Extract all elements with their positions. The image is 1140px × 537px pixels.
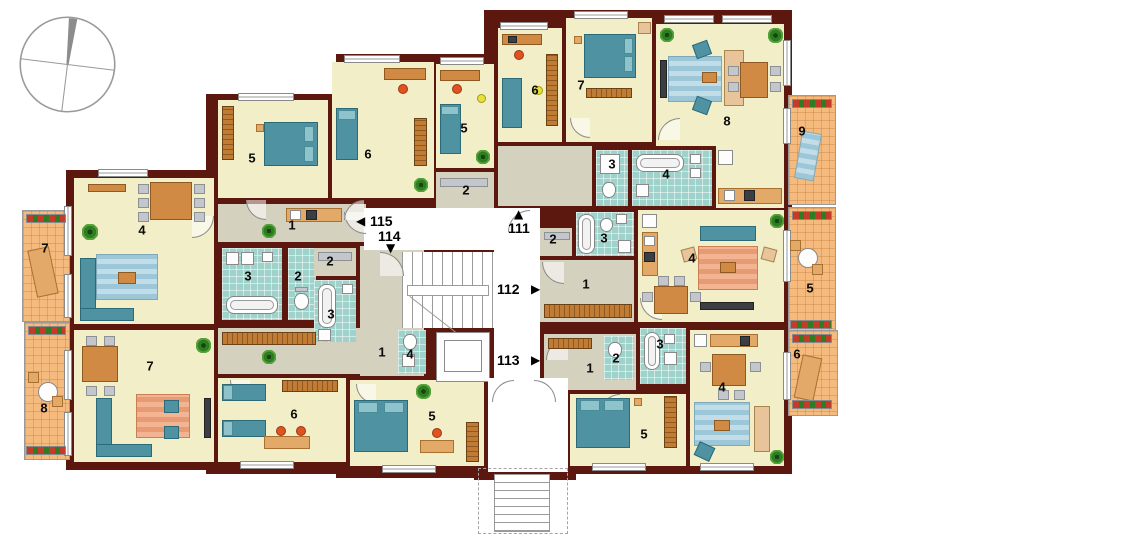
window — [783, 352, 791, 400]
washing-machine — [618, 240, 631, 253]
wardrobe — [222, 332, 316, 345]
plant — [262, 350, 276, 364]
sink — [644, 236, 655, 246]
armchair — [164, 400, 179, 413]
room-label: 7 — [146, 360, 153, 373]
window — [64, 274, 72, 318]
room-label: 7 — [577, 79, 584, 92]
armchair — [164, 426, 179, 439]
armchair — [638, 22, 651, 34]
apartment-number-112: 112 — [497, 282, 520, 296]
bathtub-basin — [640, 158, 680, 168]
apartment-number-115: 115 — [370, 214, 393, 228]
flower-box — [26, 446, 66, 455]
window — [500, 22, 548, 30]
toilet — [294, 293, 309, 310]
room-label: 1 — [288, 219, 295, 232]
corner-sofa — [80, 308, 134, 321]
chair — [728, 66, 739, 76]
chair — [690, 292, 701, 302]
stove — [744, 190, 755, 201]
desk-chair — [276, 426, 286, 436]
chair — [734, 390, 745, 400]
stove — [306, 210, 317, 220]
room-label: 3 — [244, 270, 251, 283]
wardrobe — [548, 338, 592, 349]
washing-machine — [226, 252, 239, 265]
room-label: 1 — [582, 278, 589, 291]
room-label: 5 — [640, 428, 647, 441]
pillow — [580, 400, 600, 411]
room-label: 5 — [806, 282, 813, 295]
window — [592, 463, 646, 471]
flower-box — [792, 334, 832, 343]
room-label: 2 — [326, 255, 333, 268]
room-label: 1 — [378, 346, 385, 359]
floor-plan-canvas: 7 8 9 5 6 4 5 6 1 3 2 7 1 2 3 4 6 5 5 2 … — [0, 0, 1140, 537]
room-label: 8 — [40, 402, 47, 415]
bathtub-basin — [582, 218, 591, 250]
bathtub-basin — [648, 336, 656, 366]
sofa — [700, 226, 756, 241]
tv-cabinet — [660, 60, 667, 98]
chair — [138, 212, 149, 222]
chair — [658, 276, 669, 286]
desk — [420, 440, 454, 453]
chair — [674, 276, 685, 286]
desk — [384, 68, 426, 80]
compass-rose-icon — [15, 12, 120, 117]
apartment-number-111: 111 — [508, 221, 530, 235]
window — [574, 11, 628, 19]
chair — [138, 198, 149, 208]
stove — [740, 336, 750, 346]
chair — [194, 184, 205, 194]
pillow — [384, 402, 404, 413]
dining-table — [654, 286, 688, 314]
flower-box — [792, 99, 832, 108]
washing-machine — [664, 352, 677, 365]
nightstand — [574, 36, 582, 44]
chair — [194, 198, 205, 208]
arrow-right-icon: ▶ — [531, 354, 540, 366]
bathtub — [578, 214, 595, 254]
window — [382, 465, 436, 473]
flower-box — [792, 211, 832, 220]
washing-machine — [241, 252, 254, 265]
window — [700, 463, 754, 471]
pillow — [223, 385, 233, 400]
pillow — [604, 400, 624, 411]
chair — [770, 82, 781, 92]
room-label: 3 — [600, 232, 607, 245]
dining-table — [740, 62, 768, 98]
room-label: 4 — [662, 168, 669, 181]
desk — [264, 436, 310, 449]
plant — [262, 224, 276, 238]
pillow — [358, 402, 378, 413]
room-111-hall — [498, 146, 592, 206]
chair — [104, 336, 115, 346]
blanket-chest — [586, 88, 632, 98]
fridge — [694, 334, 707, 347]
elevator — [436, 332, 490, 382]
window — [783, 108, 791, 144]
window — [238, 93, 294, 101]
tv-cabinet — [700, 302, 754, 310]
entrance-stairs — [494, 474, 550, 532]
room-label: 3 — [656, 338, 663, 351]
flower-box — [26, 214, 66, 223]
room-label: 2 — [294, 270, 301, 283]
single-bed — [502, 78, 522, 128]
room-label: 2 — [612, 352, 619, 365]
room-label: 5 — [428, 410, 435, 423]
chair — [700, 362, 711, 372]
computer — [508, 36, 517, 43]
window — [783, 40, 791, 86]
wardrobe — [466, 422, 479, 462]
fridge — [718, 150, 733, 165]
desk-chair — [398, 84, 408, 94]
desk-chair — [452, 84, 462, 94]
plant — [770, 214, 784, 228]
pillow — [304, 146, 314, 162]
coffee-table — [720, 262, 736, 273]
sink — [724, 190, 735, 201]
sink — [664, 334, 675, 344]
chair — [194, 212, 205, 222]
room-label: 3 — [608, 158, 615, 171]
ball — [477, 94, 486, 103]
chair — [728, 82, 739, 92]
window — [664, 15, 714, 23]
wardrobe — [546, 54, 558, 126]
nightstand — [634, 398, 642, 406]
window — [64, 350, 72, 400]
corner-sofa — [80, 258, 96, 312]
toilet — [602, 182, 616, 198]
desk-chair — [296, 426, 306, 436]
pillow — [304, 126, 314, 142]
chair — [790, 240, 801, 251]
room-label: 6 — [364, 148, 371, 161]
chair — [52, 396, 63, 407]
chair — [86, 336, 97, 346]
room-label: 6 — [290, 408, 297, 421]
sink — [616, 214, 627, 224]
plant — [660, 28, 674, 42]
kitchen-counter — [710, 334, 758, 347]
flower-box — [792, 400, 832, 409]
sink — [262, 252, 273, 262]
coffee-table — [714, 420, 730, 431]
chair — [28, 372, 39, 383]
dining-table — [150, 182, 192, 220]
plant — [416, 384, 431, 399]
chair — [86, 386, 97, 396]
bathtub-basin — [230, 300, 274, 310]
tv-cabinet — [204, 398, 211, 438]
washing-machine — [318, 329, 331, 341]
room-label: 8 — [723, 115, 730, 128]
room-label: 4 — [138, 224, 145, 237]
sink — [690, 168, 701, 178]
pillow — [624, 38, 633, 54]
plant — [770, 450, 784, 464]
dining-table — [712, 354, 746, 386]
plant — [476, 150, 490, 164]
plant — [768, 28, 783, 43]
sofa — [754, 406, 770, 452]
room-label: 5 — [460, 122, 467, 135]
arrow-right-icon: ▶ — [531, 283, 540, 295]
rug — [136, 394, 190, 438]
chair — [812, 264, 823, 275]
wardrobe — [282, 380, 338, 392]
room-label: 4 — [406, 348, 413, 361]
plant — [414, 178, 428, 192]
flower-box — [790, 320, 832, 329]
room-label: 9 — [798, 125, 805, 138]
window — [344, 55, 400, 63]
stove — [644, 252, 655, 262]
room-label: 4 — [718, 381, 725, 394]
room-label: 1 — [586, 362, 593, 375]
room-label: 5 — [248, 152, 255, 165]
desk — [440, 70, 480, 81]
sink — [342, 284, 353, 294]
staircase — [402, 252, 494, 328]
arrow-up-icon: ▲ — [514, 208, 523, 220]
corner-sofa — [96, 444, 152, 457]
plant — [82, 224, 98, 240]
chair — [104, 386, 115, 396]
washing-machine — [636, 184, 649, 197]
cistern — [295, 287, 308, 292]
pillow — [441, 106, 459, 115]
room-label: 7 — [41, 242, 48, 255]
window — [440, 57, 484, 65]
chair — [750, 362, 761, 372]
bathtub — [226, 296, 278, 314]
apartment-number-113: 113 — [497, 353, 520, 367]
window — [783, 230, 791, 282]
wardrobe — [414, 118, 427, 166]
chair — [770, 66, 781, 76]
room-label: 2 — [549, 233, 556, 246]
pillow — [223, 421, 233, 436]
dining-table — [82, 346, 118, 382]
room-label: 3 — [327, 308, 334, 321]
wardrobe — [664, 396, 677, 448]
room-label: 4 — [688, 252, 695, 265]
desk-chair — [514, 50, 524, 60]
window — [240, 461, 294, 469]
corner-sofa — [96, 398, 112, 448]
shelf — [318, 252, 352, 261]
desk-chair — [432, 428, 442, 438]
coffee-table — [702, 72, 717, 83]
chair — [642, 292, 653, 302]
chair — [138, 184, 149, 194]
nightstand — [256, 124, 264, 132]
arrow-down-icon: ▼ — [386, 242, 395, 254]
pillow — [624, 56, 633, 72]
stair-rail — [407, 285, 489, 296]
room-label: 6 — [793, 348, 800, 361]
elevator-car — [444, 340, 482, 372]
room-label: 2 — [462, 184, 469, 197]
window — [722, 15, 772, 23]
sink — [690, 154, 701, 164]
sideboard — [88, 184, 126, 192]
window — [98, 169, 148, 177]
fridge — [642, 214, 657, 228]
arrow-left-icon: ◀ — [356, 215, 365, 227]
flower-box — [28, 326, 66, 335]
wardrobe — [544, 304, 632, 318]
coffee-table — [118, 272, 136, 284]
bathtub — [636, 154, 684, 172]
room-label: 6 — [531, 84, 538, 97]
pillow — [338, 110, 356, 120]
shelf — [544, 232, 570, 240]
wardrobe — [222, 106, 234, 160]
plant — [196, 338, 211, 353]
